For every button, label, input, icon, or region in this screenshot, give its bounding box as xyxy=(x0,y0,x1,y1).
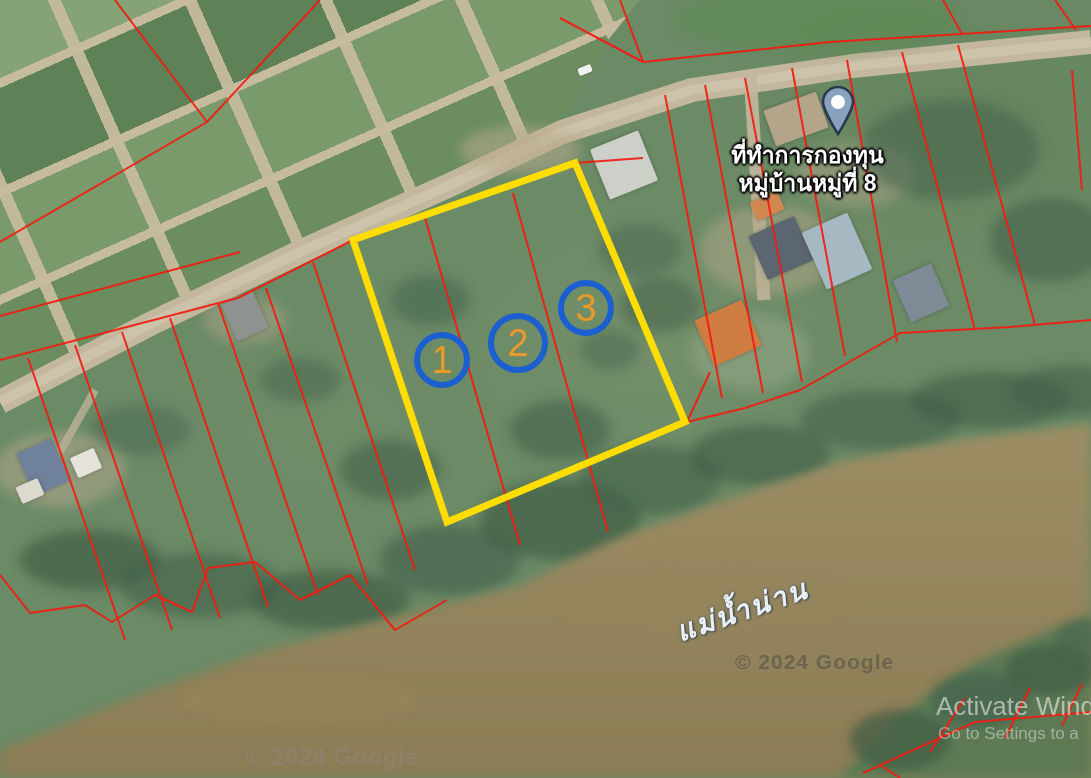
plot-marker-3[interactable]: 3 xyxy=(558,280,614,336)
location-pin-icon[interactable] xyxy=(819,86,859,138)
village-fund-office-label-line2: หมู่บ้านหมู่ที่ 8 xyxy=(695,169,920,197)
highlight-parcel-outline xyxy=(0,0,1091,778)
plot-marker-1-number: 1 xyxy=(431,341,452,379)
plot-marker-2-number: 2 xyxy=(507,324,528,362)
plot-marker-1[interactable]: 1 xyxy=(414,332,470,388)
plot-marker-2[interactable]: 2 xyxy=(488,313,548,373)
google-watermark-river: © 2024 Google xyxy=(735,650,894,674)
village-fund-office-label: ที่ทำการกองทุน หมู่บ้านหมู่ที่ 8 xyxy=(695,141,920,197)
village-fund-office-label-line1: ที่ทำการกองทุน xyxy=(695,141,920,169)
satellite-map[interactable]: 1 2 3 ที่ทำการกองทุน หมู่บ้านหมู่ที่ 8 แ… xyxy=(0,0,1091,778)
plot-marker-3-number: 3 xyxy=(575,289,596,327)
activate-windows-subtext: Go to Settings to a xyxy=(938,724,1079,744)
activate-windows-text: Activate Wind xyxy=(936,691,1091,722)
google-watermark-shore: © 2024 Google xyxy=(246,744,419,771)
